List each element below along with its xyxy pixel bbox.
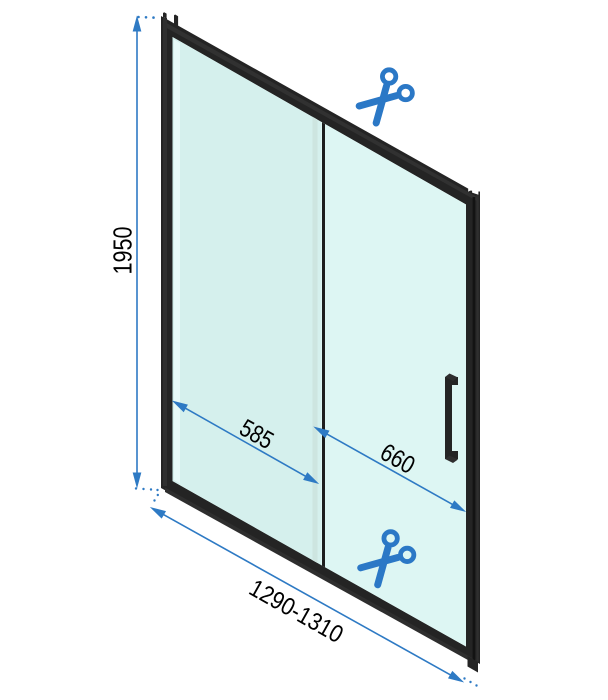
svg-text:1950: 1950 — [108, 227, 138, 275]
